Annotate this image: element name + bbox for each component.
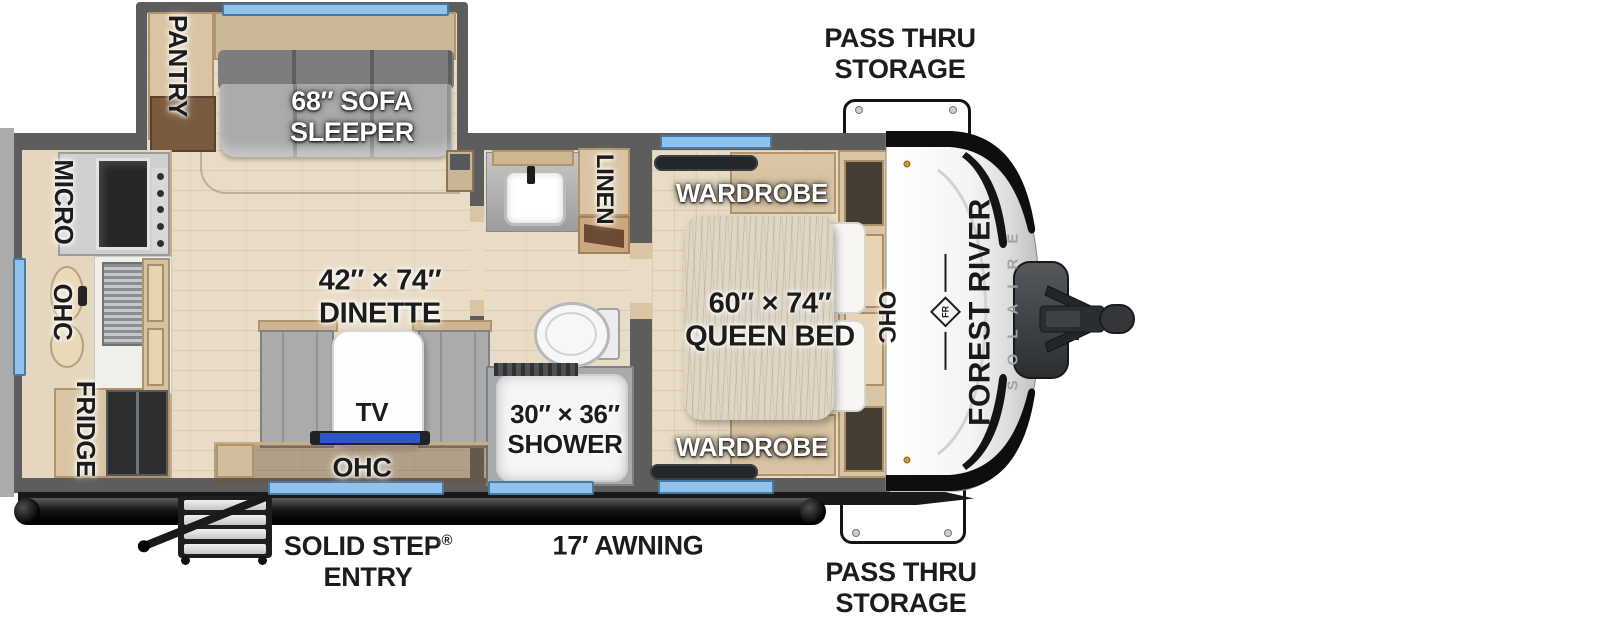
tv-screen bbox=[320, 433, 420, 443]
toilet-bowl bbox=[534, 302, 610, 368]
shower-head-strip bbox=[494, 363, 578, 376]
logo-monogram: FR bbox=[941, 306, 951, 318]
label-pass-thru-storage-top: PASS THRU STORAGE bbox=[824, 23, 975, 85]
label-sofa-sleeper: 68″ SOFA SLEEPER bbox=[290, 86, 414, 148]
end-table-top bbox=[450, 154, 470, 170]
label-wardrobe-top: WARDROBE bbox=[676, 179, 828, 209]
dinette-table bbox=[332, 330, 424, 446]
bath-sink-shelf bbox=[492, 150, 574, 166]
awning-end-cap-right bbox=[800, 498, 826, 525]
fridge-door-split bbox=[136, 392, 139, 474]
label-solid-step-entry: SOLID STEP® ENTRY bbox=[284, 531, 452, 593]
brand-logo-row: FR bbox=[935, 254, 957, 370]
bedroom-window-top bbox=[660, 135, 772, 149]
cap-screw-gold bbox=[904, 457, 910, 463]
cabinet-door-panel bbox=[147, 264, 164, 322]
label-wardrobe-bottom: WARDROBE bbox=[676, 433, 828, 463]
logo-rule bbox=[945, 254, 947, 292]
label-pass-thru-storage-bottom: PASS THRU STORAGE bbox=[825, 557, 976, 619]
screw-dot bbox=[944, 529, 952, 537]
label-awning: 17′ AWNING bbox=[553, 530, 704, 561]
rear-wall-window bbox=[13, 258, 26, 376]
front-cap-branding: FR FOREST RIVER SOLAIRE bbox=[935, 198, 1022, 426]
door-jamb bbox=[630, 243, 652, 259]
label-dinette-ohc: OHC bbox=[332, 452, 391, 483]
sofa-end-table bbox=[446, 150, 474, 192]
label-micro: MICRO bbox=[48, 159, 78, 244]
step-foot bbox=[181, 556, 190, 565]
dinette-side-cabinet bbox=[216, 444, 254, 478]
step-foot bbox=[258, 556, 267, 565]
bedroom-door-opening bbox=[630, 259, 652, 303]
awning-end-cap-left bbox=[14, 498, 40, 525]
bathroom-door-opening bbox=[470, 222, 484, 300]
cabinet-door-panel bbox=[147, 328, 164, 386]
label-fridge: FRIDGE bbox=[70, 381, 100, 477]
toilet-seat bbox=[545, 312, 597, 356]
kitchen-faucet bbox=[78, 286, 87, 306]
knob bbox=[157, 173, 164, 180]
shelf-shadow bbox=[584, 224, 624, 248]
brand-manufacturer: FOREST RIVER bbox=[964, 198, 998, 426]
bath-sink bbox=[504, 170, 566, 226]
wardrobe-open-top bbox=[844, 160, 884, 226]
step-tread bbox=[184, 529, 266, 539]
step-tread bbox=[184, 544, 266, 554]
bathroom-window-bottom bbox=[488, 481, 594, 495]
door-jamb bbox=[470, 206, 484, 222]
knob bbox=[157, 206, 164, 213]
screw-dot bbox=[855, 106, 863, 114]
door-jamb bbox=[630, 303, 652, 319]
knob bbox=[157, 223, 164, 230]
dinette-bench-right bbox=[418, 330, 490, 448]
knob bbox=[157, 190, 164, 197]
door-jamb bbox=[470, 300, 484, 316]
knob bbox=[157, 240, 164, 247]
wardrobe-open-bottom bbox=[844, 406, 884, 472]
bedroom-window-bottom bbox=[658, 480, 774, 494]
logo-rule bbox=[945, 332, 947, 370]
screw-dot bbox=[949, 106, 957, 114]
screw-dot bbox=[852, 529, 860, 537]
hitch-coupler bbox=[1100, 305, 1134, 333]
label-queen-bed: 60″ × 74″ QUEEN BED bbox=[685, 288, 855, 355]
label-linen: LINEN bbox=[590, 154, 618, 225]
cap-screw-gold bbox=[904, 161, 910, 167]
awning-roller-tube bbox=[16, 498, 824, 525]
hitch-jack-plate bbox=[1046, 311, 1080, 327]
forest-river-logo-icon: FR bbox=[930, 296, 961, 327]
label-dinette: 42″ × 74″ DINETTE bbox=[319, 265, 442, 332]
label-pantry: PANTRY bbox=[162, 15, 192, 117]
bath-faucet bbox=[527, 166, 535, 184]
body-left-shadow bbox=[0, 128, 14, 497]
label-bedroom-ohc: OHC bbox=[872, 291, 900, 343]
bedroom-vent-mat-top bbox=[654, 155, 758, 171]
fridge-doors bbox=[106, 390, 168, 476]
cooktop-knob-strip bbox=[152, 168, 168, 252]
rv-floorplan-diagram: FR FOREST RIVER SOLAIRE PASS THRU STORAG… bbox=[0, 0, 1600, 625]
kitchen-cabinet-doors bbox=[142, 258, 170, 392]
label-kitchen-ohc: OHC bbox=[47, 284, 77, 341]
brand-model: SOLAIRE bbox=[1005, 219, 1022, 406]
bedroom-vent-mat-bottom bbox=[650, 464, 758, 480]
label-tv: TV bbox=[356, 398, 389, 428]
slideout-window bbox=[222, 3, 449, 16]
label-shower: 30″ × 36″ SHOWER bbox=[507, 400, 622, 460]
rail-end-cap bbox=[136, 538, 152, 554]
cooktop-griddle bbox=[102, 262, 144, 346]
microwave-door bbox=[96, 158, 150, 250]
